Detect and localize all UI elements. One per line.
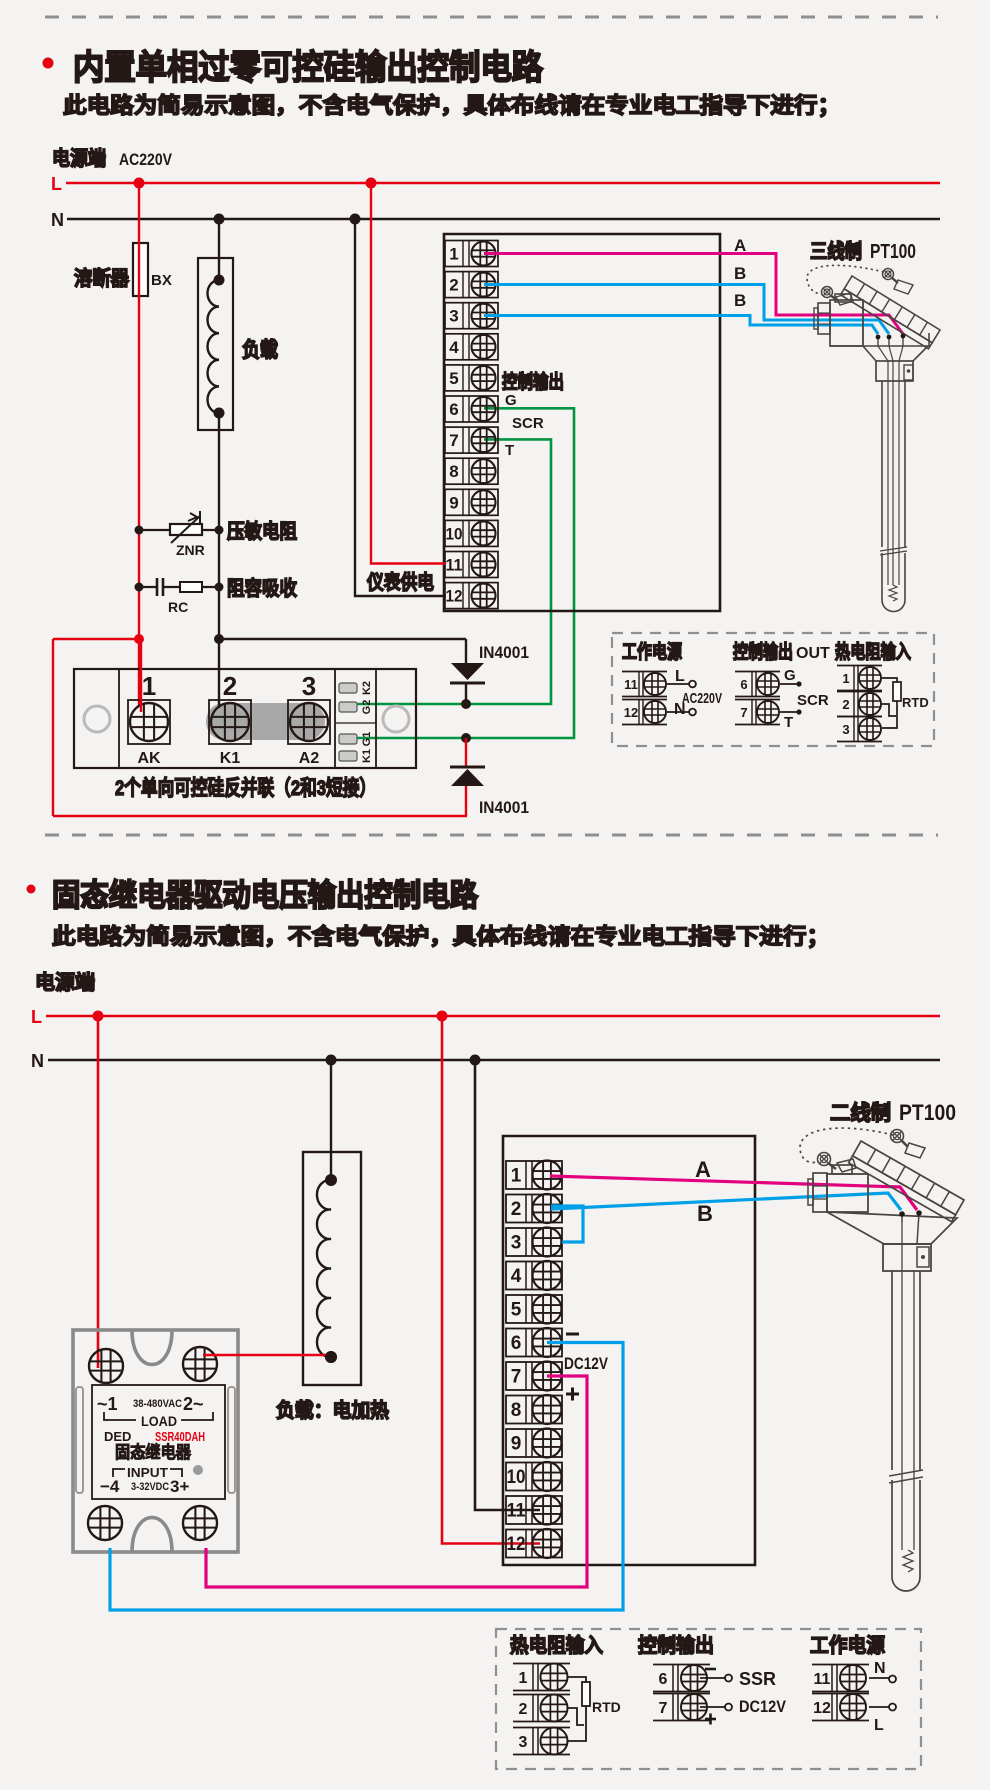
svg-text:A2: A2 [299,750,320,767]
svg-text:A: A [695,1157,711,1182]
svg-text:3-32VDC: 3-32VDC [131,1481,169,1493]
svg-text:2: 2 [449,276,458,295]
svg-text:AC220V: AC220V [682,690,722,707]
svg-text:热电阻输入: 热电阻输入 [510,1633,603,1657]
svg-text:B: B [734,291,746,310]
svg-text:B: B [697,1201,713,1226]
svg-text:7: 7 [449,431,458,450]
svg-text:1: 1 [519,1670,528,1687]
svg-text:N: N [51,210,64,230]
svg-text:N: N [31,1051,44,1071]
svg-text:G: G [505,392,517,409]
svg-text:内置单相过零可控硅输出控制电路: 内置单相过零可控硅输出控制电路 [73,49,544,87]
svg-text:PT100: PT100 [899,1100,956,1125]
svg-text:12: 12 [446,587,463,606]
svg-text:11: 11 [446,556,463,575]
svg-text:工作电源: 工作电源 [810,1633,885,1657]
svg-text:2: 2 [511,1199,522,1220]
svg-text:SCR: SCR [512,415,544,432]
svg-text:固态继电器: 固态继电器 [115,1442,192,1462]
svg-text:IN4001: IN4001 [479,643,529,662]
svg-text:RTD: RTD [592,1699,621,1715]
svg-text:G1: G1 [361,732,373,747]
svg-text:电源端: 电源端 [35,971,95,994]
svg-text:5: 5 [511,1300,522,1321]
svg-text:8: 8 [449,462,458,481]
svg-text:K1: K1 [220,750,241,767]
svg-text:RC: RC [168,599,188,615]
svg-text:此电路为简易示意图，不含电气保护，具体布线请在专业电工指导下: 此电路为简易示意图，不含电气保护，具体布线请在专业电工指导下进行； [63,93,841,118]
svg-text:固态继电器驱动电压输出控制电路: 固态继电器驱动电压输出控制电路 [52,878,479,913]
svg-text:8: 8 [511,1400,522,1421]
svg-text:INPUT: INPUT [127,1465,168,1480]
svg-text:ZNR: ZNR [176,542,205,558]
svg-text:5: 5 [449,369,458,388]
svg-text:11: 11 [814,1671,831,1688]
svg-text:6: 6 [511,1333,522,1354]
svg-text:负载：电加热: 负载：电加热 [276,1398,389,1422]
svg-text:11: 11 [624,677,638,692]
svg-text:G2: G2 [361,700,373,715]
svg-text:SSR: SSR [739,1669,776,1689]
svg-text:控制输出: 控制输出 [638,1633,714,1657]
svg-text:阻容吸收: 阻容吸收 [227,576,297,600]
svg-text:1: 1 [511,1166,522,1187]
svg-text:热电阻输入: 热电阻输入 [835,640,911,663]
svg-text:T: T [784,714,793,731]
svg-text:DED: DED [104,1429,131,1444]
svg-text:10: 10 [507,1467,526,1488]
svg-text:G: G [784,667,796,684]
svg-text:RTD: RTD [902,695,929,710]
svg-text:工作电源: 工作电源 [622,640,682,663]
svg-text:K2: K2 [361,681,373,695]
svg-text:2: 2 [519,1701,528,1718]
svg-text:3: 3 [842,722,849,737]
svg-text:9: 9 [511,1434,522,1455]
svg-text:10: 10 [446,524,463,543]
svg-text:仪表供电: 仪表供电 [366,570,434,594]
svg-text:12: 12 [813,1700,831,1717]
svg-text:K1: K1 [361,749,373,763]
svg-text:SCR: SCR [797,692,829,709]
svg-text:SSR40DAH: SSR40DAH [155,1429,205,1444]
svg-text:1: 1 [449,245,458,264]
svg-text:3: 3 [302,671,316,701]
svg-text:12: 12 [507,1534,526,1555]
svg-text:BX: BX [151,272,172,289]
svg-text:−4: −4 [100,1477,120,1496]
svg-text:L: L [51,174,62,194]
svg-text:L: L [874,1717,884,1734]
svg-text:12: 12 [624,705,638,720]
svg-text:A: A [734,236,746,255]
svg-text:3+: 3+ [170,1477,189,1496]
svg-text:L: L [31,1007,42,1027]
svg-text:IN4001: IN4001 [479,798,529,817]
svg-text:DC12V: DC12V [739,1697,787,1716]
svg-text:PT100: PT100 [870,241,916,263]
svg-text:4: 4 [511,1266,522,1287]
svg-text:电源端: 电源端 [52,147,106,170]
svg-text:L: L [675,668,685,685]
svg-text:控制输出: 控制输出 [502,370,564,393]
svg-text:1: 1 [142,671,156,701]
svg-text:2: 2 [223,671,237,701]
svg-text:AK: AK [137,750,161,767]
svg-text:二线制: 二线制 [830,1101,891,1125]
svg-text:3: 3 [449,307,458,326]
svg-text:3: 3 [511,1233,522,1254]
svg-text:38-480VAC: 38-480VAC [133,1398,182,1410]
svg-text:7: 7 [511,1367,522,1388]
svg-text:AC220V: AC220V [119,150,173,169]
svg-text:压敏电阻: 压敏电阻 [227,519,297,543]
svg-text:9: 9 [449,493,458,512]
svg-text:DC12V: DC12V [564,1354,609,1373]
svg-text:2个单向可控硅反并联（2和3短接）: 2个单向可控硅反并联（2和3短接） [115,776,376,800]
svg-text:6: 6 [740,677,747,692]
svg-text:溶断器: 溶断器 [74,266,130,290]
svg-text:6: 6 [449,400,458,419]
svg-text:N: N [874,1660,886,1677]
svg-text:4: 4 [449,338,459,357]
svg-text:控制输出: 控制输出 [733,640,793,663]
svg-text:2: 2 [842,697,849,712]
svg-text:B: B [734,264,746,283]
svg-text:T: T [505,442,514,459]
svg-text:3: 3 [519,1734,528,1751]
svg-text:三线制: 三线制 [810,239,862,263]
svg-text:OUT: OUT [796,645,830,662]
svg-text:~1: ~1 [97,1394,118,1414]
svg-text:6: 6 [659,1671,668,1688]
svg-text:7: 7 [659,1700,668,1717]
svg-text:N: N [674,701,686,718]
svg-text:LOAD: LOAD [141,1413,177,1429]
svg-text:2~: 2~ [183,1394,204,1414]
svg-text:7: 7 [740,705,747,720]
svg-text:1: 1 [842,671,849,686]
svg-text:11: 11 [507,1501,526,1522]
svg-text:负载: 负载 [242,338,278,362]
svg-text:此电路为简易示意图，不含电气保护，具体布线请在专业电工指导下: 此电路为简易示意图，不含电气保护，具体布线请在专业电工指导下进行； [52,924,830,949]
